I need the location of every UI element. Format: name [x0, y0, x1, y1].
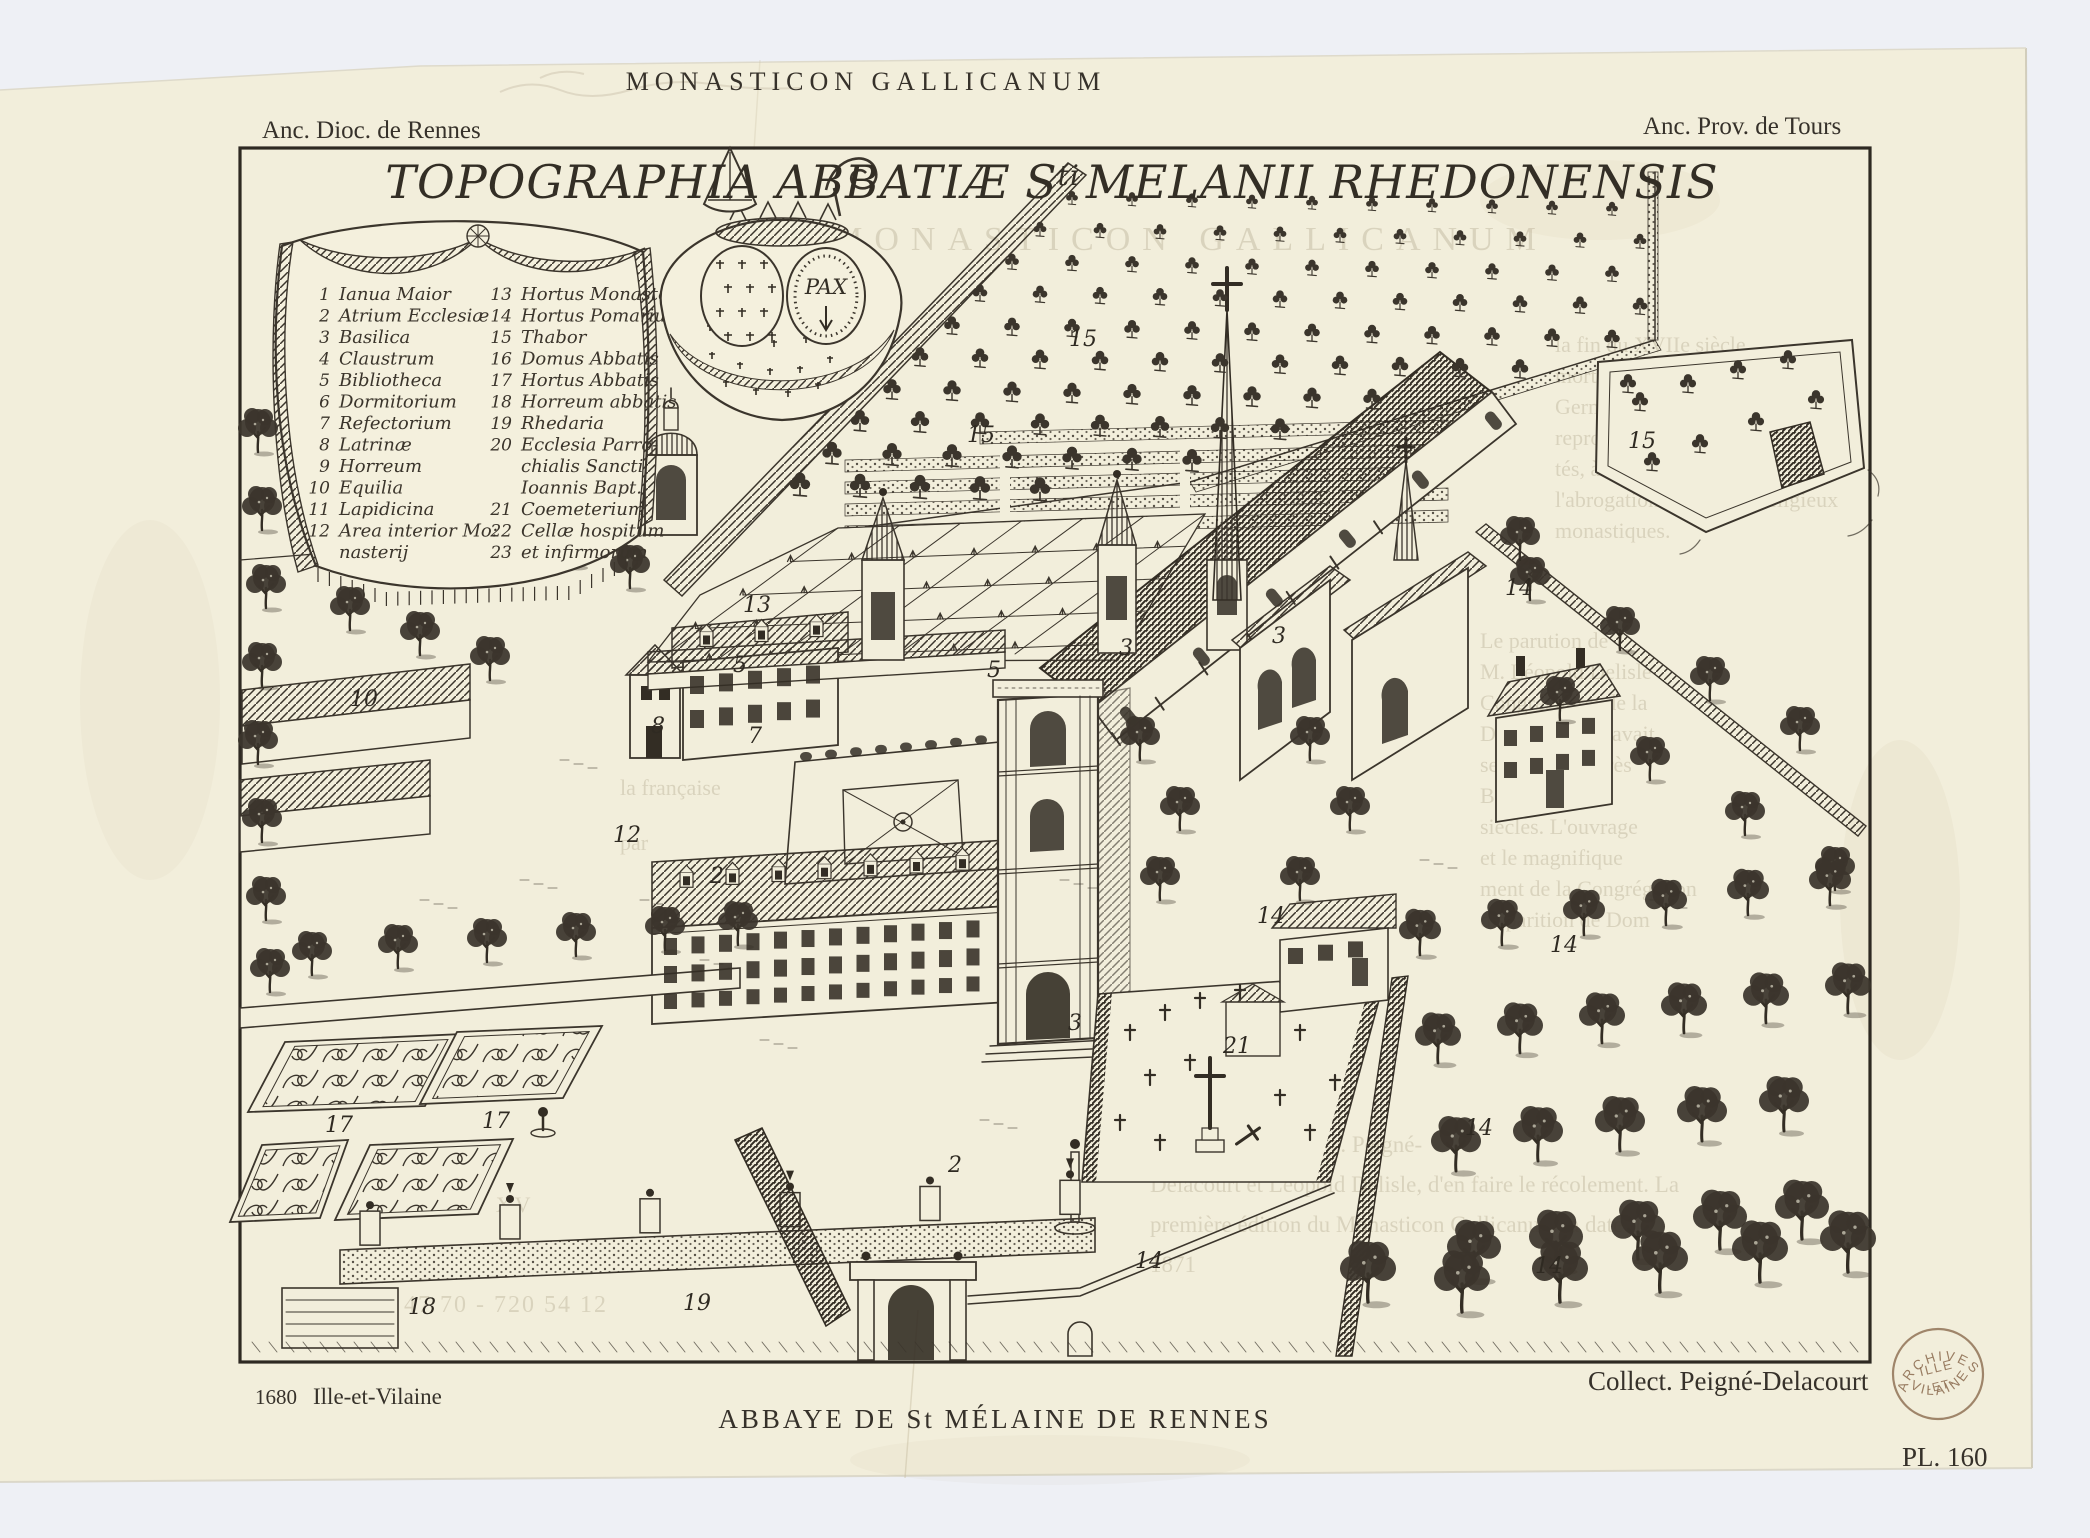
window	[774, 932, 787, 949]
legend-number: 6	[319, 393, 330, 413]
plan-label-8: 8	[651, 714, 665, 739]
legend-number: 17	[490, 371, 512, 391]
window	[719, 673, 733, 691]
legend-label: Lapidicina	[338, 499, 434, 520]
terrace-post	[640, 1199, 660, 1233]
post-finial	[506, 1195, 514, 1203]
legend-number: 13	[490, 285, 512, 305]
window	[912, 924, 925, 941]
window	[664, 994, 677, 1009]
window	[884, 925, 897, 942]
legend-number: 15	[490, 328, 512, 348]
legend-number: 14	[490, 307, 512, 327]
legend-label: Domus Abbatis	[520, 349, 659, 370]
window	[802, 930, 815, 947]
legend-number: 7	[319, 414, 330, 434]
dormer-window	[913, 862, 920, 871]
legend-label: Horreum abbatis	[520, 392, 677, 413]
window	[1582, 750, 1595, 766]
legend-label: Bibliotheca	[338, 370, 442, 391]
legend-number: 23	[489, 543, 512, 563]
plate-caption: ABBAYE DE St MÉLAINE DE RENNES	[718, 1404, 1271, 1434]
window	[939, 922, 952, 939]
series-title: MONASTICON GALLICANUM	[626, 67, 1107, 96]
legend-label: Coemeterium	[521, 499, 645, 520]
window	[802, 958, 815, 975]
window	[884, 981, 897, 996]
legend-label: Cellæ hospitum	[521, 521, 664, 542]
terrace-post	[1060, 1180, 1080, 1214]
window	[829, 928, 842, 945]
legend-label: Basilica	[338, 327, 410, 348]
plan-label-18: 18	[408, 1295, 436, 1320]
legend-number: 21	[489, 500, 512, 520]
legend-number: 10	[308, 479, 330, 499]
legend-label: Claustrum	[339, 349, 435, 370]
ghost-line: la française	[620, 775, 721, 800]
legend-label: Horreum	[338, 456, 422, 477]
arcade-arch	[950, 738, 962, 747]
window	[1504, 730, 1517, 746]
legend-number: 5	[319, 371, 330, 391]
arcade-arch	[925, 740, 937, 749]
post-finial	[646, 1189, 654, 1197]
plan-label-3: 3	[1272, 624, 1286, 649]
legend-label: Area interior Mo:	[337, 521, 498, 542]
window	[664, 938, 677, 955]
window	[806, 700, 820, 718]
plan-label-5: 5	[733, 653, 747, 678]
window	[1288, 948, 1303, 964]
plate-date: 1680	[255, 1385, 297, 1409]
plate-svg: MONASTICON GALLICANUM la fin du XVIIe si…	[0, 0, 2090, 1538]
window	[1530, 726, 1543, 742]
legend-label: Rhedaria	[520, 413, 604, 434]
plan-label-2: 2	[947, 1153, 962, 1178]
diocese-note: Anc. Dioc. de Rennes	[262, 117, 481, 144]
window	[967, 920, 980, 937]
window	[690, 710, 704, 728]
legend-label: Atrium Ecclesiæ	[337, 306, 489, 327]
arcade-arch	[800, 752, 812, 761]
legend-number: 9	[319, 457, 330, 477]
dormer-window	[703, 635, 710, 644]
dormer-window	[775, 871, 782, 880]
plan-label-17: 17	[325, 1113, 353, 1138]
window	[1318, 945, 1333, 961]
plan-label-12: 12	[613, 823, 641, 848]
legend-label: Hortus Abbatis	[520, 370, 659, 391]
window	[748, 671, 762, 689]
plan-label-14: 14	[1257, 904, 1285, 929]
window	[719, 963, 732, 980]
window	[748, 705, 762, 723]
legend-label: Equilia	[338, 478, 403, 499]
ghost-line: monastiques.	[1555, 518, 1671, 543]
window	[747, 989, 760, 1004]
window	[884, 953, 897, 970]
window	[829, 956, 842, 973]
legend-label: Thabor	[521, 327, 588, 348]
plan-label-14: 14	[1535, 1254, 1563, 1279]
dormer-window	[758, 631, 765, 640]
window	[857, 983, 870, 998]
coronet	[716, 218, 848, 246]
dormer-window	[867, 865, 874, 874]
plan-label-14: 14	[1135, 1249, 1163, 1274]
post-finial	[926, 1176, 934, 1184]
dormer-window	[959, 859, 966, 868]
ghost-line: 56 47 70 - 720 54 12	[368, 1292, 608, 1318]
window	[1556, 722, 1569, 738]
window	[802, 986, 815, 1001]
window	[719, 935, 732, 952]
window	[1556, 754, 1569, 770]
plan-label-3: 3	[1068, 1011, 1082, 1036]
window	[857, 927, 870, 944]
legend-label: Ianua Maior	[338, 284, 452, 305]
legend-label: et infirmorum	[521, 542, 648, 563]
legend-label: Refectorium	[338, 413, 452, 434]
window	[777, 702, 791, 720]
window	[1348, 941, 1363, 957]
window	[829, 984, 842, 999]
ghost-line: et le magnifique	[1480, 845, 1623, 870]
plate-number: PL. 160	[1902, 1442, 1988, 1472]
terrace-post	[500, 1205, 520, 1239]
dormer-window	[729, 873, 736, 882]
arcade-arch	[875, 745, 887, 754]
window	[692, 964, 705, 981]
plan-label-19: 19	[683, 1291, 711, 1316]
dormer-window	[813, 626, 820, 635]
province-note: Anc. Prov. de Tours	[1643, 113, 1841, 140]
plan-label-14: 14	[1550, 933, 1578, 958]
collection-credit: Collect. Peigné-Delacourt	[1588, 1366, 1869, 1396]
motto-pax: PAX	[804, 275, 848, 299]
post-finial	[1066, 1170, 1074, 1178]
terrace-post	[920, 1186, 940, 1220]
arcade-arch	[975, 735, 987, 744]
window	[1582, 718, 1595, 734]
plan-label-21: 21	[1222, 1034, 1251, 1059]
legend-label: Latrinæ	[338, 435, 412, 456]
dormer-window	[821, 868, 828, 877]
legend-label: Dormitorium	[338, 392, 457, 413]
scanned-plate-page: MONASTICON GALLICANUM la fin du XVIIe si…	[0, 0, 2090, 1538]
window	[967, 976, 980, 991]
legend-number: 16	[490, 350, 512, 370]
window	[912, 980, 925, 995]
post-finial	[366, 1201, 374, 1209]
plan-label-14: 14	[1465, 1116, 1493, 1141]
legend-number: 3	[319, 328, 330, 348]
window	[857, 955, 870, 972]
arcade-arch	[900, 743, 912, 752]
window	[719, 707, 733, 725]
window	[806, 666, 820, 684]
window	[967, 948, 980, 965]
window	[939, 950, 952, 967]
ghost-heading: MONASTICON GALLICANUM	[832, 221, 1548, 258]
plan-label-7: 7	[748, 724, 762, 749]
window	[747, 933, 760, 950]
window	[747, 961, 760, 978]
legend-number: 8	[319, 436, 330, 456]
window	[690, 676, 704, 694]
window	[692, 936, 705, 953]
dormer-window	[683, 876, 690, 885]
terrace-post	[360, 1211, 380, 1245]
plan-label-2: 2	[709, 864, 724, 889]
plan-label-14: 14	[1505, 576, 1533, 601]
plan-label-15: 15	[1628, 429, 1656, 454]
window	[912, 952, 925, 969]
plan-label-15: 15	[1069, 327, 1097, 352]
plan-label-13: 13	[743, 593, 771, 618]
legend-label: Hortus Pomarius	[520, 306, 675, 327]
legend-cartouche: 1Ianua Maior2Atrium Ecclesiæ3Basilica4Cl…	[273, 221, 689, 606]
window	[939, 978, 952, 993]
window	[1504, 762, 1517, 778]
legend-number: 22	[489, 522, 512, 542]
window	[719, 991, 732, 1006]
plan-label-17: 17	[482, 1109, 510, 1134]
legend-number: 4	[318, 350, 330, 370]
legend-label: Ioannis Bapt.	[520, 478, 642, 499]
window	[664, 966, 677, 983]
legend-number: 12	[308, 522, 330, 542]
window	[692, 992, 705, 1007]
legend-number: 19	[490, 414, 512, 434]
arcade-arch	[850, 747, 862, 756]
window	[777, 668, 791, 686]
legend-number: 2	[318, 307, 330, 327]
plan-label-5: 5	[987, 658, 1001, 683]
legend-label: Ecclesia Parro-	[520, 435, 658, 456]
plan-label-10: 10	[350, 687, 378, 712]
legend-number: 11	[308, 500, 330, 520]
legend-number: 18	[490, 393, 512, 413]
window	[774, 960, 787, 977]
legend-label: chialis Sancti	[521, 456, 643, 477]
legend-label: nasterij	[339, 542, 409, 563]
plate-title: TOPOGRAPHIA ABBATIÆ StiMELANII RHEDONENS…	[385, 155, 1718, 209]
window	[1530, 758, 1543, 774]
legend-number: 1	[319, 285, 330, 305]
arcade-arch	[825, 750, 837, 759]
window	[774, 988, 787, 1003]
plan-label-3: 3	[1119, 636, 1133, 661]
plan-label-15: 15	[967, 423, 995, 448]
department-label: Ille-et-Vilaine	[313, 1384, 442, 1409]
ghost-line: Le parution de	[1480, 628, 1608, 653]
legend-number: 20	[489, 436, 512, 456]
